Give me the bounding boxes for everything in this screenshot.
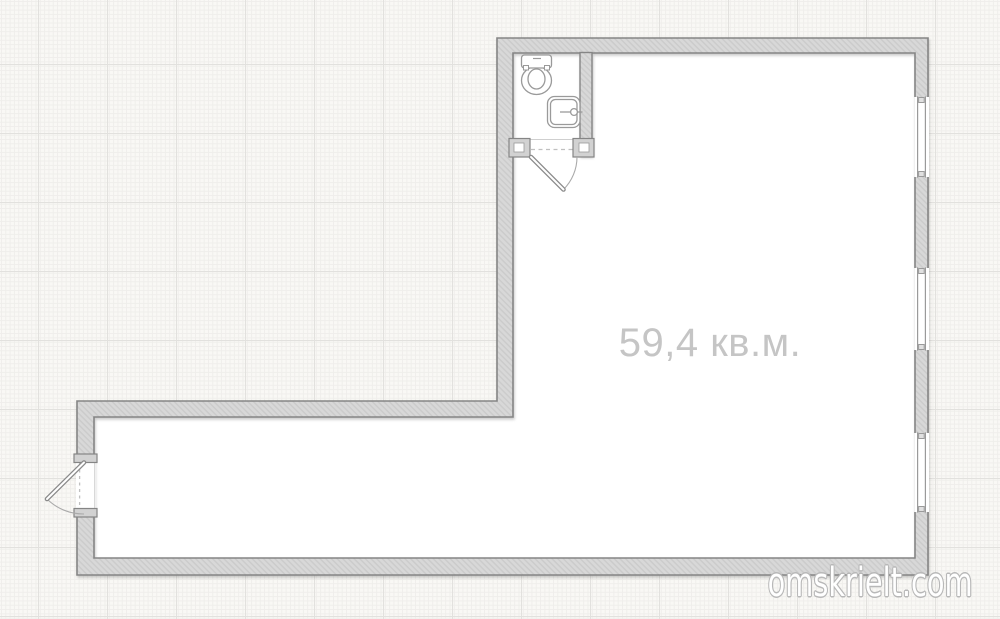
floorplan-drawing: 59,4 кв.м.: [0, 0, 1000, 619]
sink-icon: [548, 97, 583, 128]
door-jamb: [74, 509, 97, 518]
window-2: [914, 268, 929, 350]
window-1: [914, 97, 929, 177]
area-label: 59,4 кв.м.: [619, 321, 801, 365]
window-3: [914, 433, 929, 512]
entrance-door: [47, 454, 97, 517]
toilet-icon: [522, 55, 552, 95]
floorplan-canvas: 59,4 кв.м. omskrielt.com: [0, 0, 1000, 619]
watermark: omskrielt.com: [768, 560, 973, 606]
